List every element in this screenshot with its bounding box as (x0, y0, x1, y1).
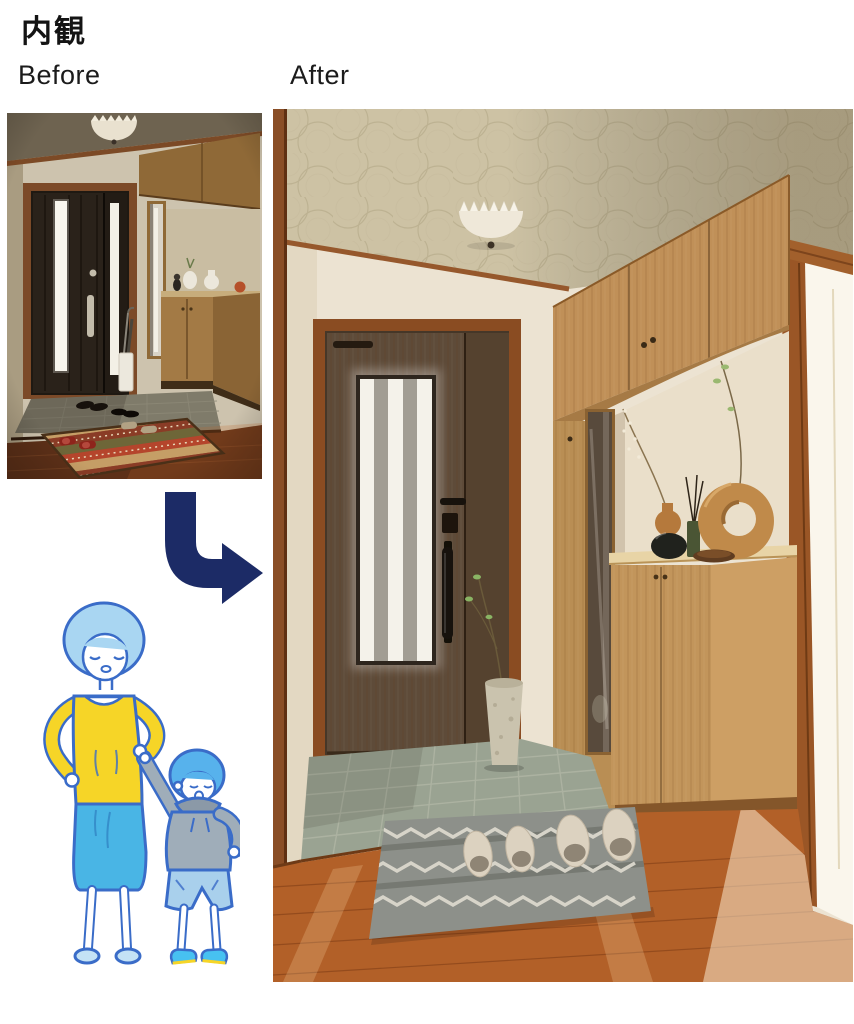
keypad-lock (442, 513, 458, 533)
page-title: 内観 (21, 6, 87, 51)
thumbturn-lock (440, 498, 466, 505)
door-closer (333, 341, 373, 348)
before-photo-scene: Dim genkan entryway before renovation: b… (7, 113, 262, 479)
cabinet-knob (641, 342, 647, 348)
mother-and-child-illustration: Mother with light-blue bob hair in yello… (30, 600, 240, 980)
before-label: Before (18, 60, 101, 91)
door-glass-slats (356, 375, 436, 665)
mother-hand-on-hip (66, 774, 79, 787)
after-photo: Bright renovated genkan: wood-grain entr… (273, 109, 853, 982)
before-photo: Dim genkan entryway before renovation: b… (7, 113, 262, 479)
mother-leg (88, 890, 92, 948)
door-bar-handle (442, 547, 453, 639)
after-label: After (290, 60, 350, 91)
arrow-shape (165, 492, 263, 604)
mother-figure (52, 603, 157, 963)
after-photo-scene: Bright renovated genkan: wood-grain entr… (273, 109, 853, 982)
boy-shorts (166, 870, 232, 910)
wooden-vase (655, 510, 681, 536)
boy-sneaker (170, 948, 196, 964)
mother-top (73, 696, 142, 804)
vignette (7, 113, 262, 479)
transition-arrow-icon (152, 492, 264, 608)
boy-figure (134, 745, 240, 963)
boy-leg (181, 908, 184, 950)
mother-shoe (75, 949, 99, 963)
